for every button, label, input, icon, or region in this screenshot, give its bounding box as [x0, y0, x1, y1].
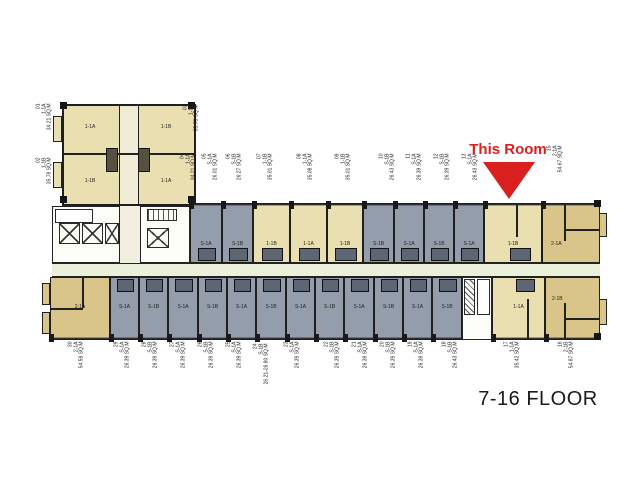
- unit-25: S-1A: [227, 277, 256, 340]
- core-room: [477, 279, 490, 315]
- bathroom-core: [322, 279, 339, 292]
- interior-wall: [516, 203, 518, 237]
- bathroom-core: [510, 248, 531, 261]
- unit-type-18: S-1B: [433, 304, 461, 310]
- bathroom-core: [263, 279, 281, 292]
- unit-type-20: S-1B: [375, 304, 402, 310]
- unit-label-24: 24S-1B26.21-26.80 SQ.M: [254, 344, 271, 394]
- column: [60, 102, 67, 109]
- bathroom-core: [198, 248, 217, 261]
- unit-type-14: 1-1B: [485, 241, 541, 247]
- service-shaft: [464, 279, 475, 315]
- unit-type-03: 1-1B: [161, 124, 172, 130]
- interior-wall: [82, 277, 84, 308]
- balcony: [42, 283, 50, 305]
- unit-label-06: 06S-1B26.27 SQ.M: [227, 154, 244, 204]
- bathroom-core: [175, 279, 193, 292]
- interior-wall: [50, 308, 83, 310]
- bathroom-core: [439, 279, 457, 292]
- column: [594, 200, 601, 207]
- column: [594, 333, 601, 340]
- bathroom-core: [351, 279, 369, 292]
- unit-type-13: S-1A: [455, 241, 483, 247]
- unit-type-04: 1-1A: [161, 178, 172, 184]
- unit-label-25: 25S-1A26.39 SQ.M: [227, 342, 244, 392]
- unit-label-23: 23S-1A26.39 SQ.M: [285, 342, 302, 392]
- unit-type-26: S-1B: [199, 304, 226, 310]
- unit-type-02: 1-1B: [85, 178, 96, 184]
- unit-type-01: 1-1A: [85, 124, 96, 130]
- unit-type-27: S-1A: [169, 304, 197, 310]
- unit-label-21: 21S-1A26.39 SQ.M: [353, 342, 370, 392]
- bathroom-core: [410, 279, 427, 292]
- nw-bathroom-core: [138, 148, 150, 172]
- unit-21: S-1A: [344, 277, 374, 340]
- unit-label-02: 021-1B35.78 SQ.M: [37, 158, 54, 208]
- unit-label-27: 27S-1A26.39 SQ.M: [171, 342, 188, 392]
- bathroom-core: [401, 248, 419, 261]
- unit-16: 2-1B: [545, 277, 600, 340]
- bathroom-core: [516, 279, 535, 292]
- interior-wall: [564, 303, 566, 340]
- bathroom-core: [234, 279, 251, 292]
- unit-label-16: 162-1B54.87 SQ.M: [559, 342, 576, 392]
- unit-05: S-1A: [190, 203, 222, 263]
- unit-type-29: S-1A: [111, 304, 138, 310]
- unit-label-07: 071-1B35.01 SQ.M: [258, 154, 275, 204]
- bathroom-core: [431, 248, 449, 261]
- balcony: [599, 299, 607, 325]
- unit-11: S-1A: [394, 203, 424, 263]
- unit-label-18: 18S-1B26.43 SQ.M: [443, 342, 460, 392]
- unit-label-11: 11S-1A26.39 SQ.M: [407, 154, 424, 204]
- balcony: [53, 162, 62, 188]
- unit-type-09: 1-1B: [328, 241, 362, 247]
- unit-label-22: 22S-1B26.39 SQ.M: [325, 342, 342, 392]
- bathroom-core: [293, 279, 310, 292]
- corridor: [52, 263, 600, 277]
- unit-label-04: 041-1A34.21 SQ.M: [181, 154, 198, 204]
- bathroom-core: [461, 248, 479, 261]
- core-room: [55, 209, 93, 223]
- unit-15: 2-1A: [542, 203, 600, 263]
- unit-label-26: 26S-1B26.39 SQ.M: [199, 342, 216, 392]
- stair-core: [462, 277, 492, 340]
- interior-wall: [564, 318, 600, 320]
- nw-block-midwall: [64, 153, 194, 155]
- unit-label-10: 10S-1B26.43 SQ.M: [380, 154, 397, 204]
- this-room-arrow: [483, 162, 535, 199]
- unit-label-28: 28S-1B26.39 SQ.M: [143, 342, 160, 392]
- unit-13: S-1A: [454, 203, 484, 263]
- interior-wall: [564, 203, 566, 241]
- unit-29: S-1A: [110, 277, 139, 340]
- unit-type-11: S-1A: [395, 241, 423, 247]
- balcony: [53, 116, 62, 142]
- unit-type-24: S-1B: [257, 304, 285, 310]
- unit-label-19: 19S-1A26.39 SQ.M: [409, 342, 426, 392]
- unit-label-03: 031-1B35.78 SQ.M: [184, 105, 201, 155]
- unit-type-12: S-1B: [425, 241, 453, 247]
- unit-type-23: S-1A: [287, 304, 314, 310]
- interior-wall: [564, 229, 600, 231]
- lift-shaft: [82, 223, 103, 244]
- unit-09: 1-1B: [327, 203, 363, 263]
- unit-label-20: 20S-1B26.39 SQ.M: [381, 342, 398, 392]
- bathroom-core: [229, 248, 247, 261]
- unit-06: S-1B: [222, 203, 253, 263]
- floor-title: 7-16 FLOOR: [478, 388, 598, 411]
- unit-17: 1-1A: [492, 277, 545, 340]
- unit-type-10: S-1B: [364, 241, 393, 247]
- unit-label-01: 011-1A34.21 SQ.M: [37, 104, 54, 154]
- bathroom-core: [205, 279, 222, 292]
- unit-type-17: 1-1A: [493, 304, 544, 310]
- unit-label-17: 171-1A35.42 SQ.M: [505, 342, 522, 392]
- unit-28: S-1B: [139, 277, 168, 340]
- unit-label-12: 12S-1B26.39 SQ.M: [435, 154, 452, 204]
- unit-label-05: 05S-1A26.01 SQ.M: [203, 154, 220, 204]
- bathroom-core: [381, 279, 398, 292]
- bathroom-core: [262, 248, 284, 261]
- stair: [147, 209, 177, 221]
- balcony: [599, 213, 607, 237]
- unit-20: S-1B: [374, 277, 403, 340]
- nw-connector-corridor: [119, 206, 141, 263]
- unit-type-08: 1-1A: [291, 241, 326, 247]
- bathroom-core: [370, 248, 388, 261]
- unit-type-25: S-1A: [228, 304, 255, 310]
- nw-bathroom-core: [106, 148, 118, 172]
- lift-shaft: [105, 223, 119, 244]
- unit-type-21: S-1A: [345, 304, 373, 310]
- unit-12: S-1B: [424, 203, 454, 263]
- floor-plan: 1-1A 1-1B 1-1B 1-1A S-1A S-1B 1-1B 1-1A …: [0, 0, 640, 480]
- unit-08: 1-1A: [290, 203, 327, 263]
- bathroom-core: [117, 279, 134, 292]
- unit-type-28: S-1B: [140, 304, 167, 310]
- unit-24: S-1B: [256, 277, 286, 340]
- unit-type-19: S-1A: [404, 304, 431, 310]
- column: [60, 196, 67, 203]
- nw-block: [62, 104, 196, 206]
- unit-07: 1-1B: [253, 203, 290, 263]
- unit-label-13: 13S-1A26.43 SQ.M: [463, 154, 480, 204]
- this-room-label: This Room: [456, 141, 560, 158]
- unit-23: S-1A: [286, 277, 315, 340]
- unit-type-07: 1-1B: [254, 241, 289, 247]
- unit-type-22: S-1B: [316, 304, 343, 310]
- unit-26: S-1B: [198, 277, 227, 340]
- unit-label-30: 302-1A54.59 SQ.M: [69, 342, 86, 392]
- unit-10: S-1B: [363, 203, 394, 263]
- bathroom-core: [146, 279, 163, 292]
- bathroom-core: [299, 248, 321, 261]
- lift-shaft: [59, 223, 80, 244]
- lift-shaft: [147, 228, 169, 248]
- unit-22: S-1B: [315, 277, 344, 340]
- unit-type-05: S-1A: [191, 241, 221, 247]
- unit-type-15: 2-1A: [543, 241, 599, 247]
- bathroom-core: [335, 248, 356, 261]
- interior-wall: [527, 299, 529, 340]
- nw-block-corridor: [119, 106, 139, 204]
- unit-18: S-1B: [432, 277, 462, 340]
- unit-label-09: 091-1B35.01 SQ.M: [336, 154, 353, 204]
- unit-27: S-1A: [168, 277, 198, 340]
- unit-label-29: 29S-1A26.39 SQ.M: [115, 342, 132, 392]
- unit-type-16: 2-1B: [546, 296, 599, 302]
- unit-19: S-1A: [403, 277, 432, 340]
- unit-14-this-room: 1-1B: [484, 203, 542, 263]
- unit-type-06: S-1B: [223, 241, 252, 247]
- balcony: [42, 312, 50, 334]
- unit-label-08: 081-1A35.08 SQ.M: [298, 154, 315, 204]
